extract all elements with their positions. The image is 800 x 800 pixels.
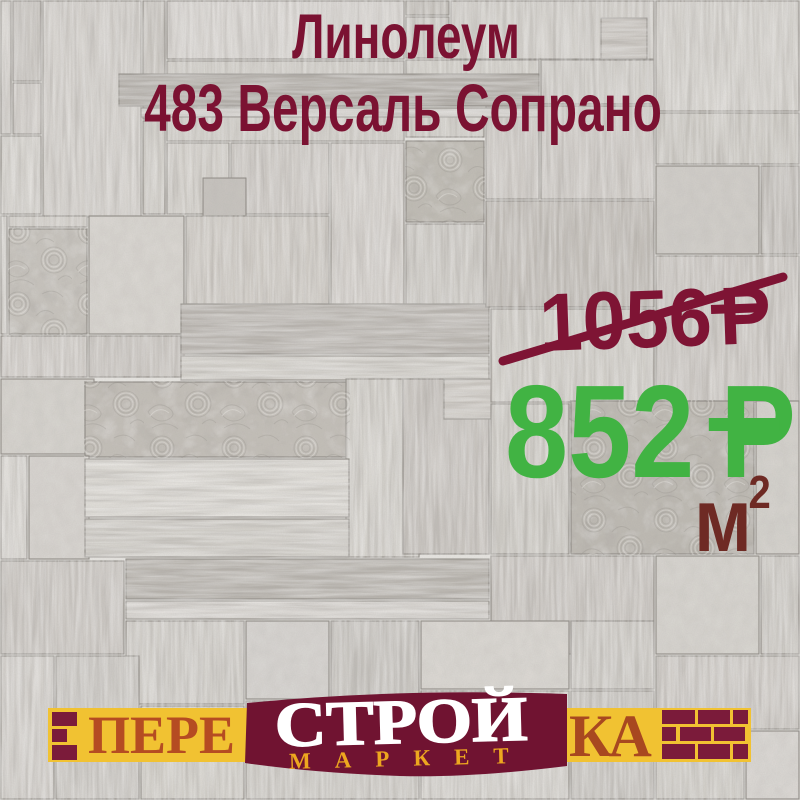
svg-text:ПЕРЕ: ПЕРЕ <box>88 705 235 765</box>
svg-text:КА: КА <box>569 703 652 769</box>
